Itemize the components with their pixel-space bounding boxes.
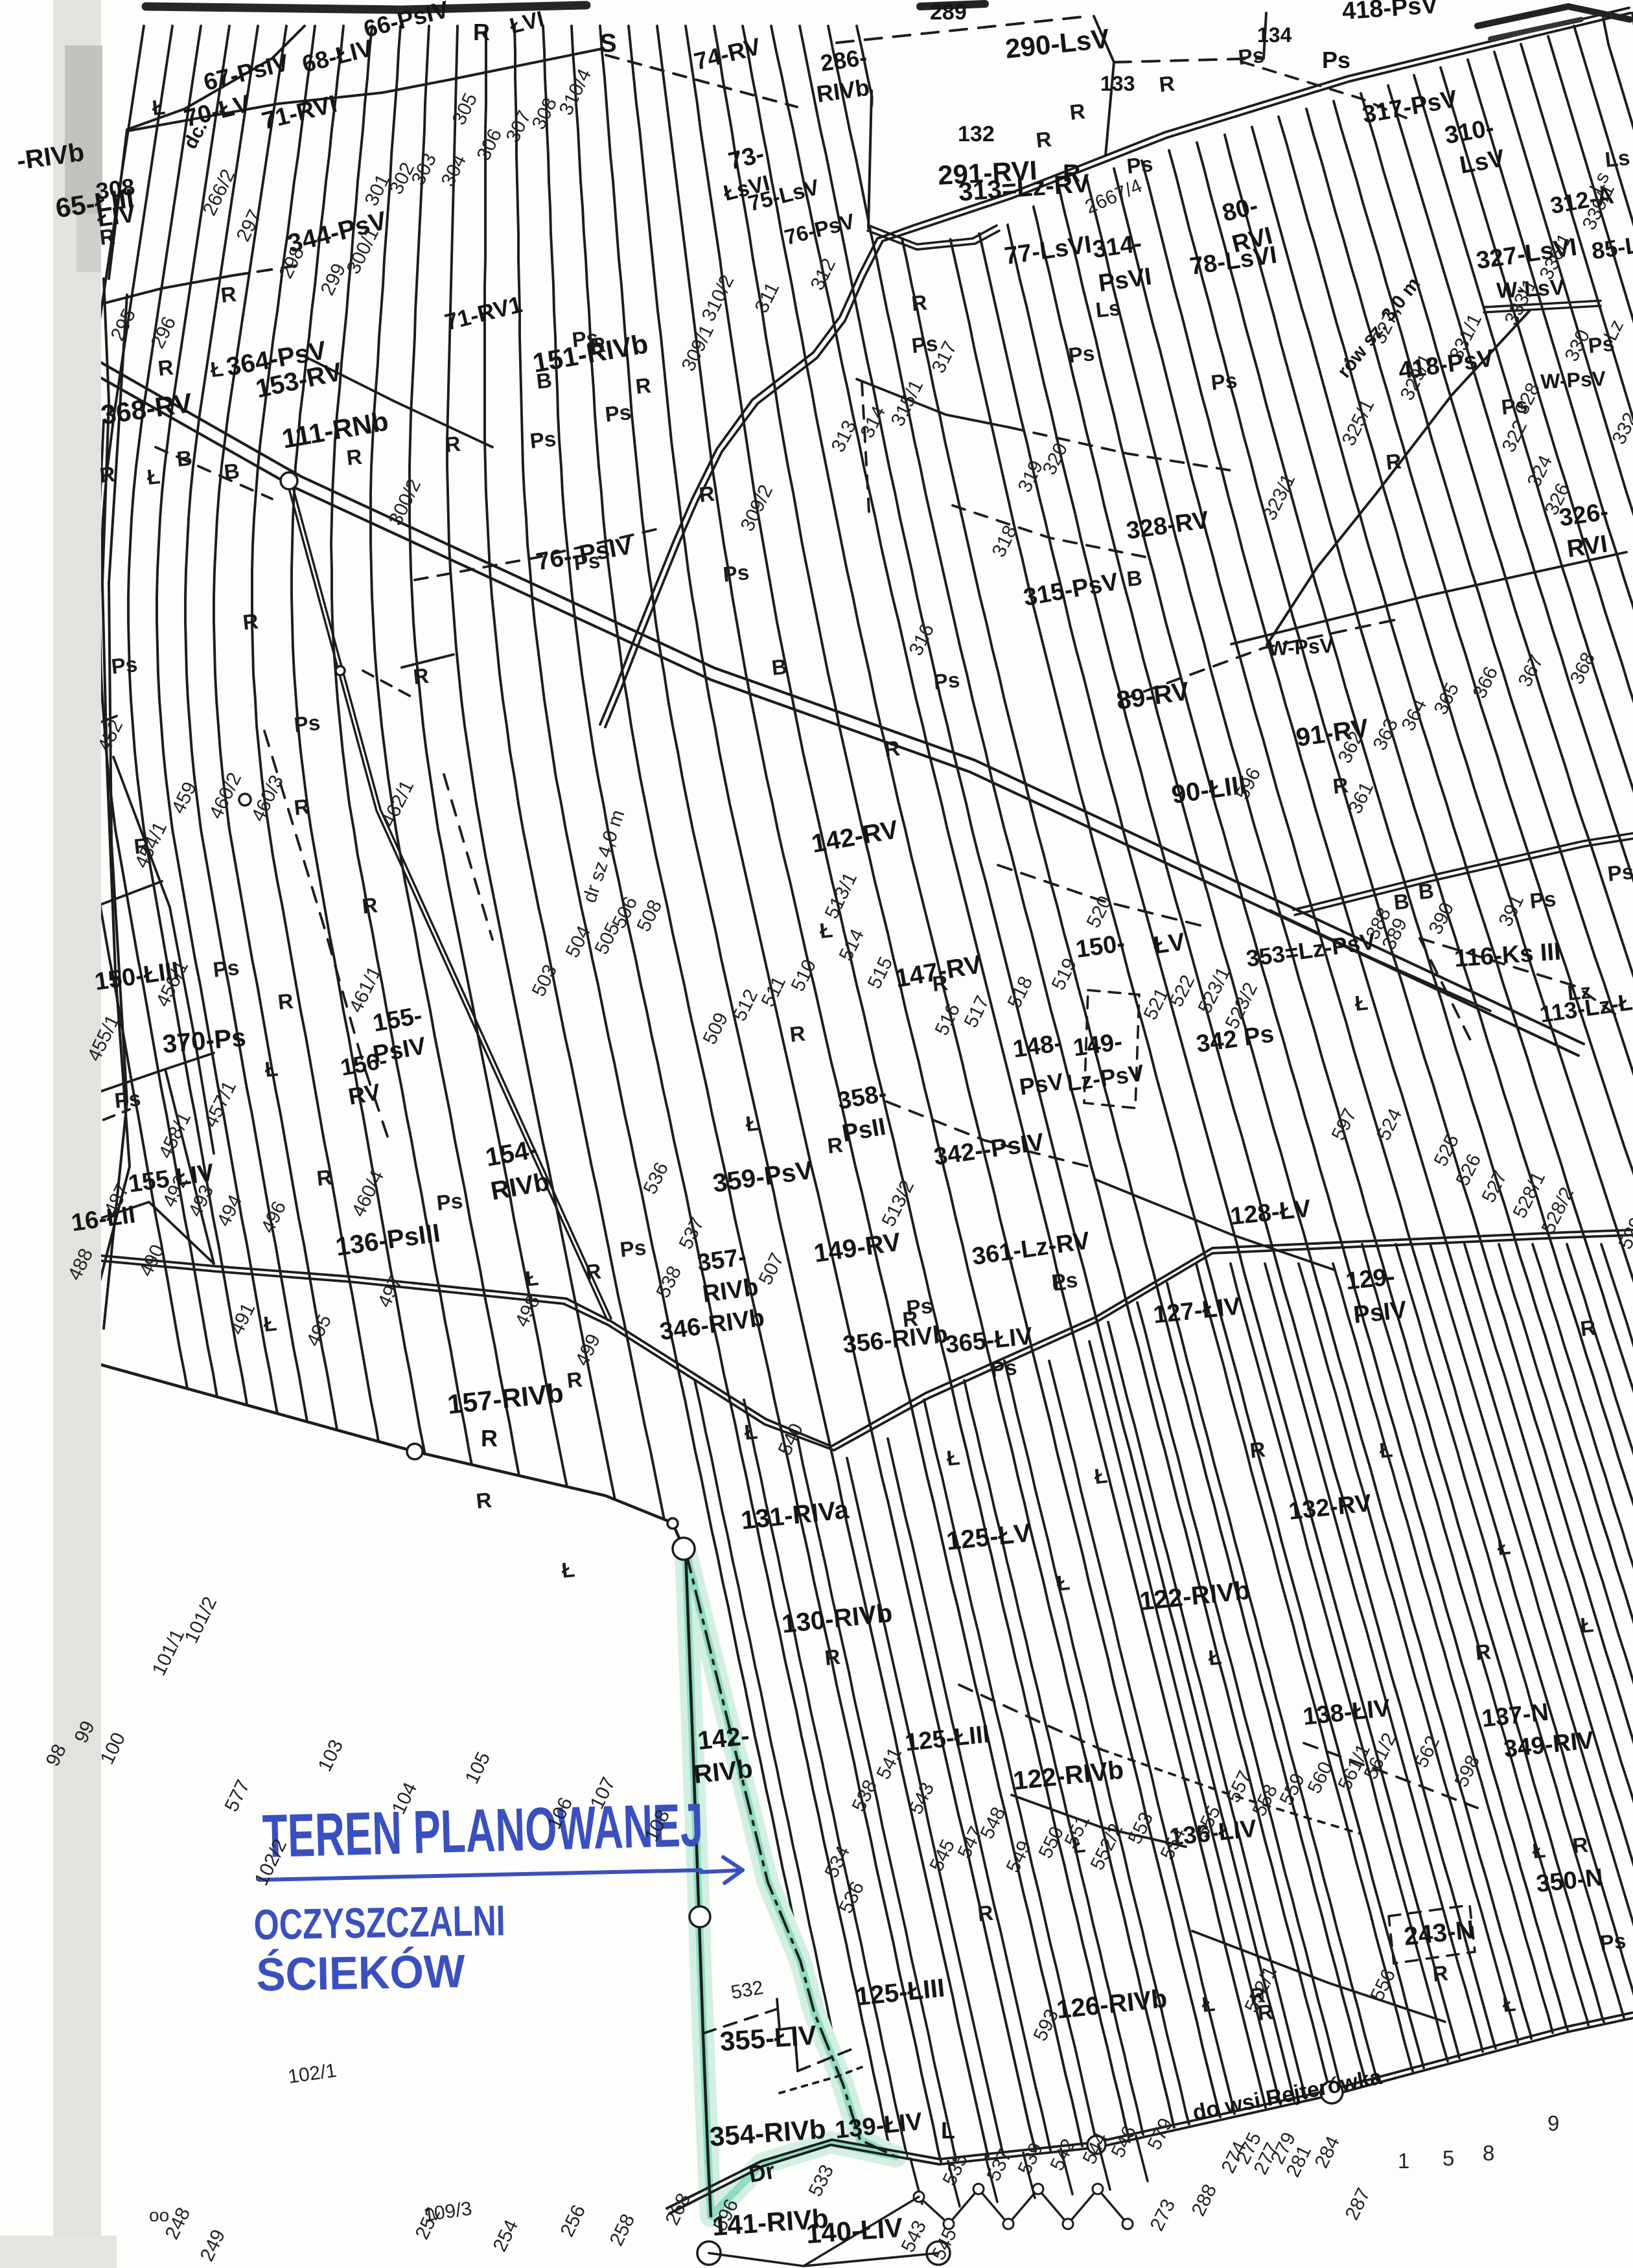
svg-text:R: R	[98, 462, 117, 487]
svg-text:R: R	[133, 833, 151, 859]
svg-text:R: R	[1332, 773, 1350, 798]
svg-text:5: 5	[1442, 2146, 1454, 2170]
svg-text:Ps: Ps	[1529, 886, 1557, 913]
svg-text:Ps: Ps	[573, 548, 601, 575]
svg-text:oo: oo	[149, 2205, 169, 2225]
svg-text:Dr: Dr	[747, 2157, 777, 2188]
svg-text:OCZYSZCZALNI: OCZYSZCZALNI	[253, 1896, 505, 1949]
svg-text:R: R	[242, 609, 260, 634]
svg-text:308: 308	[94, 173, 136, 205]
svg-text:R: R	[977, 1901, 995, 1926]
svg-text:Ps: Ps	[1210, 368, 1238, 395]
svg-text:Ł: Ł	[1531, 1838, 1547, 1863]
svg-text:R: R	[220, 282, 238, 307]
svg-text:289: 289	[930, 0, 967, 25]
svg-text:ŁV: ŁV	[1152, 928, 1187, 959]
svg-text:R: R	[1571, 1833, 1590, 1858]
svg-text:Ps: Ps	[293, 710, 321, 737]
svg-text:Ł: Ł	[743, 1419, 759, 1444]
svg-text:R: R	[826, 1133, 844, 1158]
svg-text:W-PsV: W-PsV	[1540, 367, 1606, 393]
svg-text:PsIV: PsIV	[1352, 1297, 1409, 1329]
svg-text:R: R	[789, 1021, 807, 1047]
svg-text:RVI: RVI	[1565, 531, 1609, 563]
svg-text:B: B	[176, 446, 194, 471]
svg-text:R: R	[481, 1425, 498, 1452]
svg-text:Ł: Ł	[1579, 1612, 1595, 1637]
svg-text:TEREN PLANOWANEJ: TEREN PLANOWANEJ	[262, 1790, 704, 1870]
svg-text:Ps: Ps	[1322, 47, 1350, 73]
svg-text:R: R	[1249, 1437, 1267, 1463]
svg-text:R: R	[910, 290, 929, 316]
svg-text:Ps: Ps	[1067, 341, 1096, 367]
svg-text:B: B	[1417, 879, 1435, 904]
svg-text:142-: 142-	[696, 1722, 750, 1755]
svg-text:Ł: Ł	[745, 1111, 760, 1136]
svg-text:Ps: Ps	[990, 1355, 1018, 1382]
svg-text:Ps: Ps	[529, 426, 557, 453]
svg-text:Ł: Ł	[1201, 1991, 1216, 2017]
svg-text:R: R	[1579, 1315, 1597, 1341]
svg-text:Ps: Ps	[113, 1086, 142, 1113]
svg-text:Ps: Ps	[1587, 331, 1616, 358]
svg-text:Ps: Ps	[110, 652, 139, 678]
svg-text:R: R	[1385, 449, 1403, 474]
svg-text:B: B	[535, 368, 553, 393]
svg-text:Ł: Ł	[561, 1557, 576, 1582]
svg-text:133: 133	[1100, 72, 1135, 95]
svg-text:Ps: Ps	[932, 667, 961, 694]
svg-text:Ł: Ł	[524, 1266, 540, 1291]
svg-text:Ł: Ł	[1207, 1645, 1223, 1670]
svg-text:Ł: Ł	[1378, 1437, 1394, 1463]
svg-text:R: R	[1069, 99, 1087, 124]
svg-text:R: R	[1035, 127, 1053, 152]
svg-text:R: R	[473, 19, 490, 45]
svg-text:W-PsV: W-PsV	[1268, 634, 1334, 660]
svg-text:R: R	[931, 971, 949, 996]
svg-text:R: R	[157, 355, 175, 380]
svg-text:Ł: Ł	[209, 356, 225, 382]
svg-text:Ł: Ł	[945, 1445, 961, 1470]
svg-text:R: R	[444, 432, 462, 457]
svg-text:R: R	[1158, 71, 1176, 97]
svg-text:Ł: Ł	[264, 1056, 279, 1082]
svg-text:R: R	[1474, 1639, 1492, 1665]
svg-text:B: B	[770, 654, 789, 680]
svg-text:Ł: Ł	[1496, 1534, 1512, 1560]
svg-text:Ps: Ps	[212, 955, 240, 982]
svg-text:L: L	[941, 2117, 955, 2144]
svg-text:Ps: Ps	[1606, 859, 1633, 886]
svg-text:Ł: Ł	[818, 918, 834, 943]
svg-text:Ł: Ł	[1501, 1991, 1517, 2017]
svg-text:132: 132	[958, 122, 995, 146]
svg-text:R: R	[634, 373, 653, 399]
svg-text:R: R	[412, 664, 430, 689]
svg-text:B: B	[1393, 889, 1411, 914]
svg-text:B: B	[223, 459, 241, 484]
svg-text:Ls: Ls	[1094, 295, 1122, 322]
svg-text:RV: RV	[346, 1078, 382, 1110]
svg-text:Ps: Ps	[1050, 1267, 1079, 1294]
svg-text:R: R	[277, 989, 295, 1014]
svg-text:Ps: Ps	[1599, 1928, 1627, 1955]
svg-text:Ł: Ł	[1056, 1570, 1071, 1595]
svg-text:1: 1	[1398, 2149, 1409, 2173]
svg-text:Ps: Ps	[722, 560, 750, 586]
svg-text:Lz: Lz	[1566, 978, 1592, 1005]
svg-text:Ł: Ł	[151, 95, 167, 120]
svg-text:Ps: Ps	[1500, 393, 1529, 419]
svg-text:R: R	[316, 1165, 334, 1190]
svg-text:Ps: Ps	[435, 1188, 464, 1215]
svg-text:B: B	[1126, 566, 1144, 591]
svg-text:Ps: Ps	[1126, 152, 1154, 178]
svg-text:R: R	[361, 893, 379, 918]
svg-text:Ps: Ps	[910, 331, 939, 358]
svg-text:Ps: Ps	[1237, 43, 1266, 69]
svg-text:R: R	[345, 445, 364, 470]
svg-text:R: R	[293, 794, 311, 820]
svg-text:R: R	[883, 736, 901, 761]
svg-text:R: R	[1431, 1961, 1450, 1986]
svg-text:R: R	[1257, 2000, 1275, 2025]
svg-text:R: R	[566, 1367, 584, 1393]
svg-text:8: 8	[1483, 2141, 1494, 2165]
svg-text:Ls: Ls	[1604, 145, 1631, 172]
svg-text:R: R	[585, 1259, 603, 1284]
svg-text:9: 9	[1547, 2111, 1559, 2135]
svg-text:Ł: Ł	[1354, 990, 1369, 1015]
svg-text:129-: 129-	[1345, 1263, 1396, 1295]
svg-text:R: R	[824, 1645, 842, 1670]
svg-text:Ps: Ps	[604, 400, 632, 426]
svg-text:Ps: Ps	[619, 1235, 647, 1262]
svg-text:R: R	[98, 224, 117, 249]
svg-text:R: R	[475, 1488, 493, 1513]
svg-text:S: S	[599, 29, 617, 58]
svg-text:Ł: Ł	[146, 464, 161, 489]
svg-text:R: R	[901, 1306, 920, 1332]
svg-text:Ł: Ł	[1093, 1463, 1109, 1488]
svg-text:Ł: Ł	[1071, 1833, 1087, 1858]
svg-text:ŚCIEKÓW: ŚCIEKÓW	[256, 1945, 465, 2001]
svg-text:R: R	[589, 332, 607, 358]
svg-text:R: R	[698, 481, 716, 507]
svg-text:Ł: Ł	[262, 1311, 278, 1336]
